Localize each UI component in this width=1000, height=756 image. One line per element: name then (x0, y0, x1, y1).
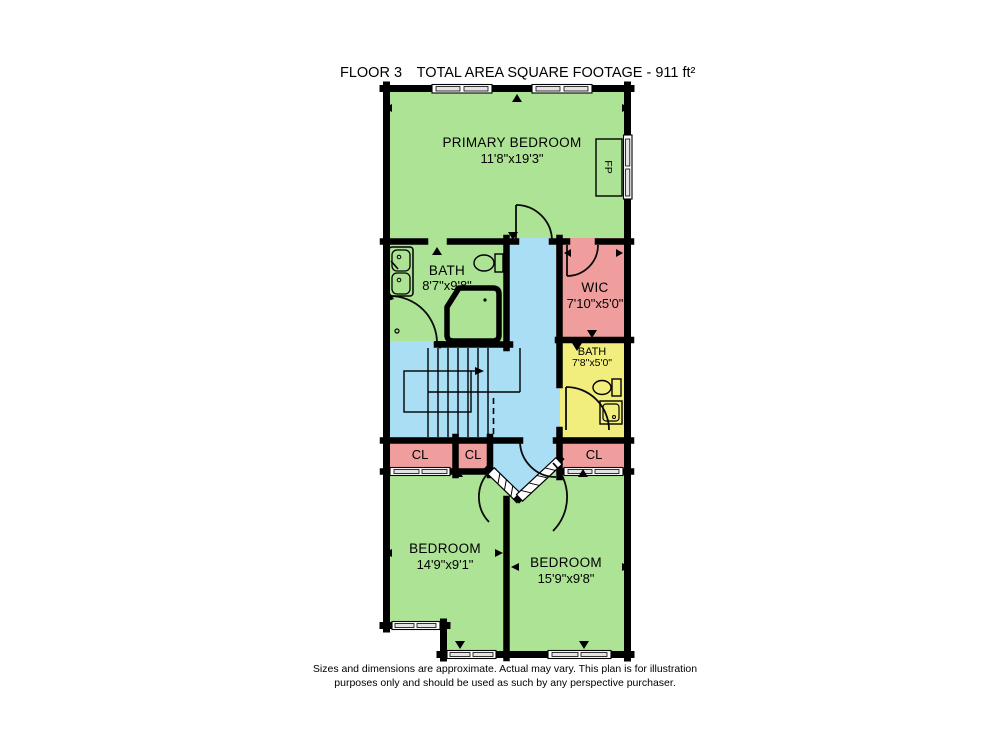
bath-small-dims: 7'8"x5'0" (572, 357, 612, 369)
wic-dims: 7'10"x5'0" (567, 296, 624, 311)
bedroom-left-name: BEDROOM (409, 541, 481, 556)
window-bottom-left (447, 651, 496, 659)
total-area-label: TOTAL AREA SQUARE FOOTAGE - 911 ft² (417, 65, 696, 81)
bedroom-right-name: BEDROOM (530, 555, 602, 570)
bedroom-right-dims: 15'9"x9'8" (538, 571, 595, 586)
hall-upper (503, 238, 560, 348)
window-notch (392, 622, 440, 630)
stair-hall (386, 341, 560, 441)
bath-main-dims: 8'7"x9'8" (422, 278, 472, 293)
closet-left-sliding-door (390, 468, 450, 476)
floor-plan-canvas: FLOOR 3 TOTAL AREA SQUARE FOOTAGE - 911 … (0, 0, 1000, 756)
floor-plan-page: FLOOR 3 TOTAL AREA SQUARE FOOTAGE - 911 … (0, 0, 1000, 756)
bedroom-left-dims: 14'9"x9'1" (417, 557, 474, 572)
closet-left-label: CL (412, 447, 429, 462)
fireplace: FP (596, 139, 622, 196)
primary-bedroom-dims: 11'8"x19'3" (480, 151, 543, 166)
closet-mid-label: CL (465, 447, 482, 462)
closet-right-label: CL (586, 447, 603, 462)
disclaimer-line1: Sizes and dimensions are approximate. Ac… (313, 663, 697, 675)
window-top-right (532, 85, 592, 94)
primary-bedroom-name: PRIMARY BEDROOM (442, 135, 581, 150)
bath-main-name: BATH (429, 263, 465, 278)
window-bottom-right (548, 651, 611, 659)
floor-label: FLOOR 3 (340, 65, 402, 81)
wic-name: WIC (581, 280, 608, 295)
window-fireplace-wall (624, 135, 633, 199)
fireplace-label: FP (602, 160, 614, 173)
closet-right-sliding-door (564, 468, 623, 476)
disclaimer-line2: purposes only and should be used as such… (334, 677, 675, 689)
window-top-left (432, 85, 492, 94)
